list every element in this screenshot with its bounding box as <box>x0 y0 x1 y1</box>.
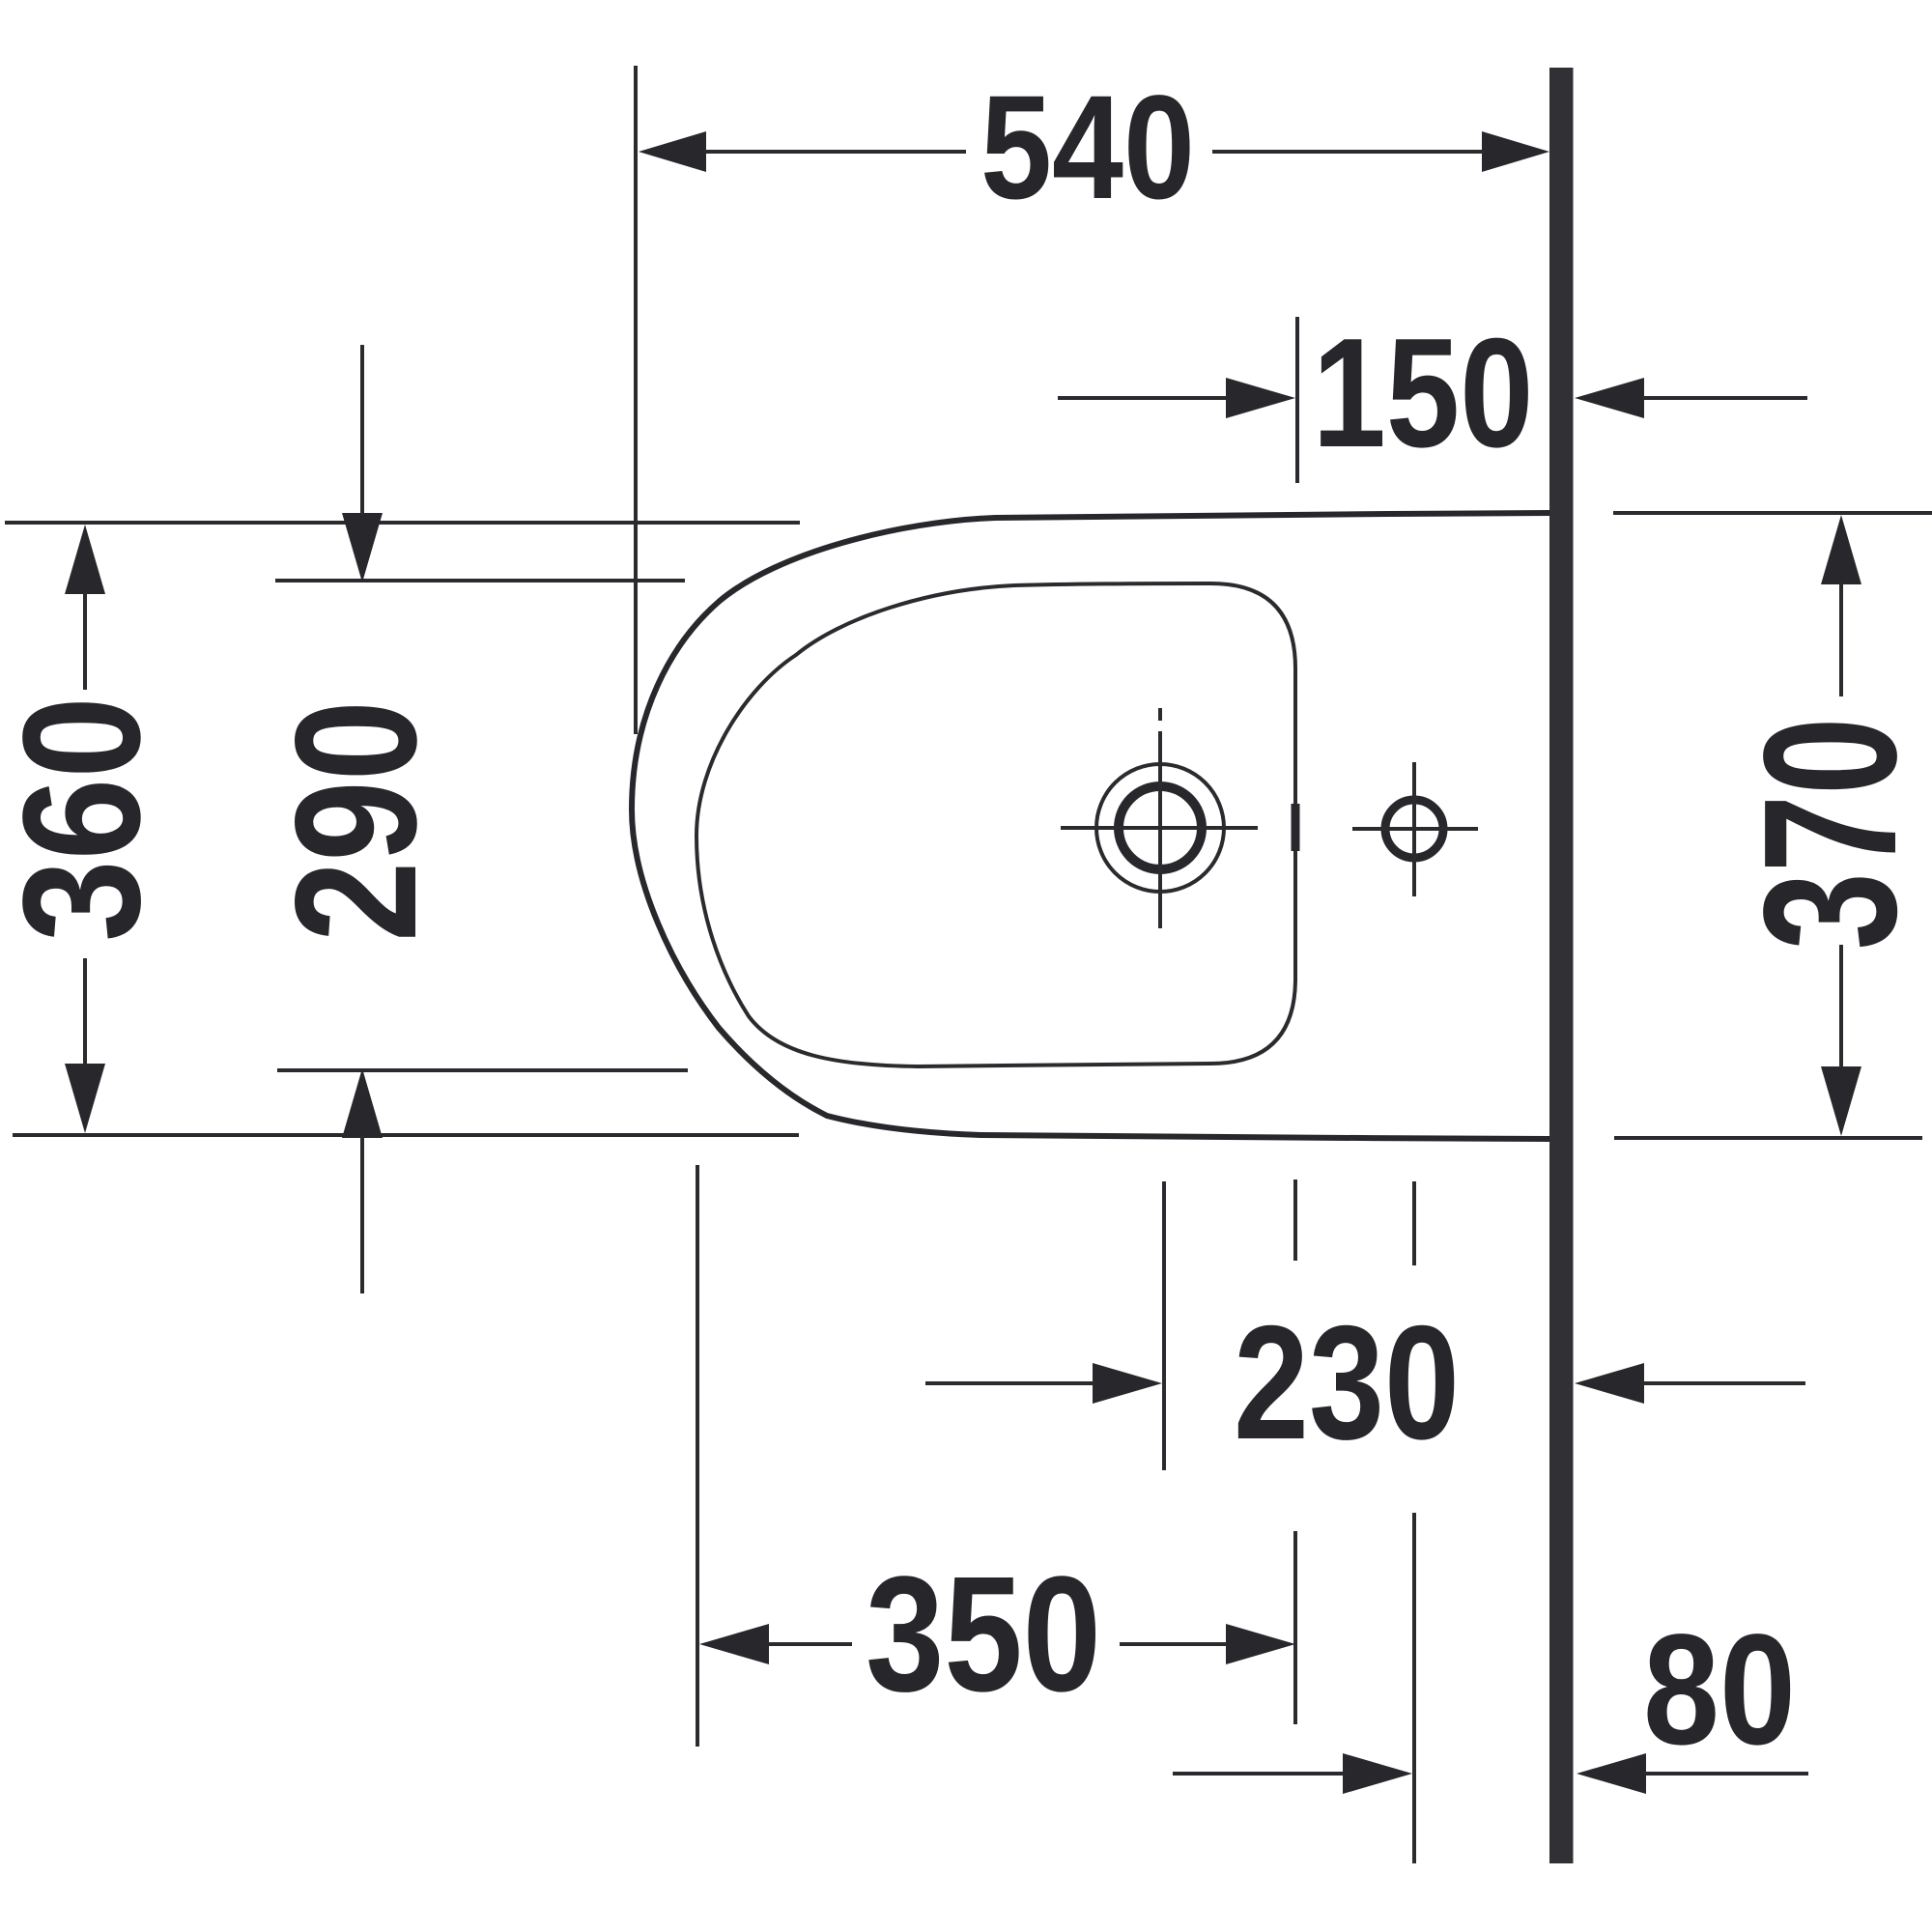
svg-text:540: 540 <box>980 65 1195 230</box>
svg-text:290: 290 <box>259 700 452 942</box>
svg-text:80: 80 <box>1643 1601 1796 1777</box>
svg-text:350: 350 <box>866 1543 1101 1726</box>
svg-text:230: 230 <box>1234 1292 1460 1473</box>
svg-text:360: 360 <box>0 696 175 942</box>
svg-text:150: 150 <box>1313 306 1534 480</box>
svg-text:370: 370 <box>1724 718 1932 951</box>
